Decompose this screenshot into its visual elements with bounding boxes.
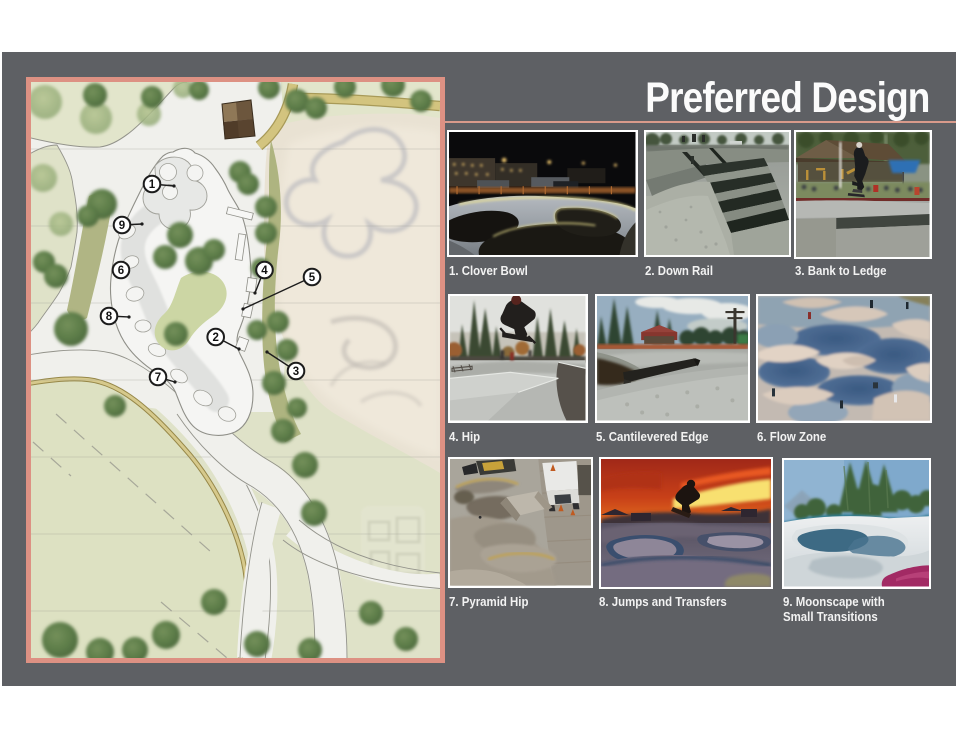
svg-text:1: 1 (149, 179, 156, 191)
svg-text:9: 9 (119, 220, 125, 232)
svg-text:4: 4 (261, 265, 268, 277)
svg-text:8: 8 (106, 311, 113, 323)
svg-text:3: 3 (293, 366, 299, 378)
svg-text:2: 2 (212, 332, 218, 344)
svg-text:7: 7 (155, 372, 161, 384)
svg-text:6: 6 (118, 265, 124, 277)
svg-text:5: 5 (309, 272, 316, 284)
